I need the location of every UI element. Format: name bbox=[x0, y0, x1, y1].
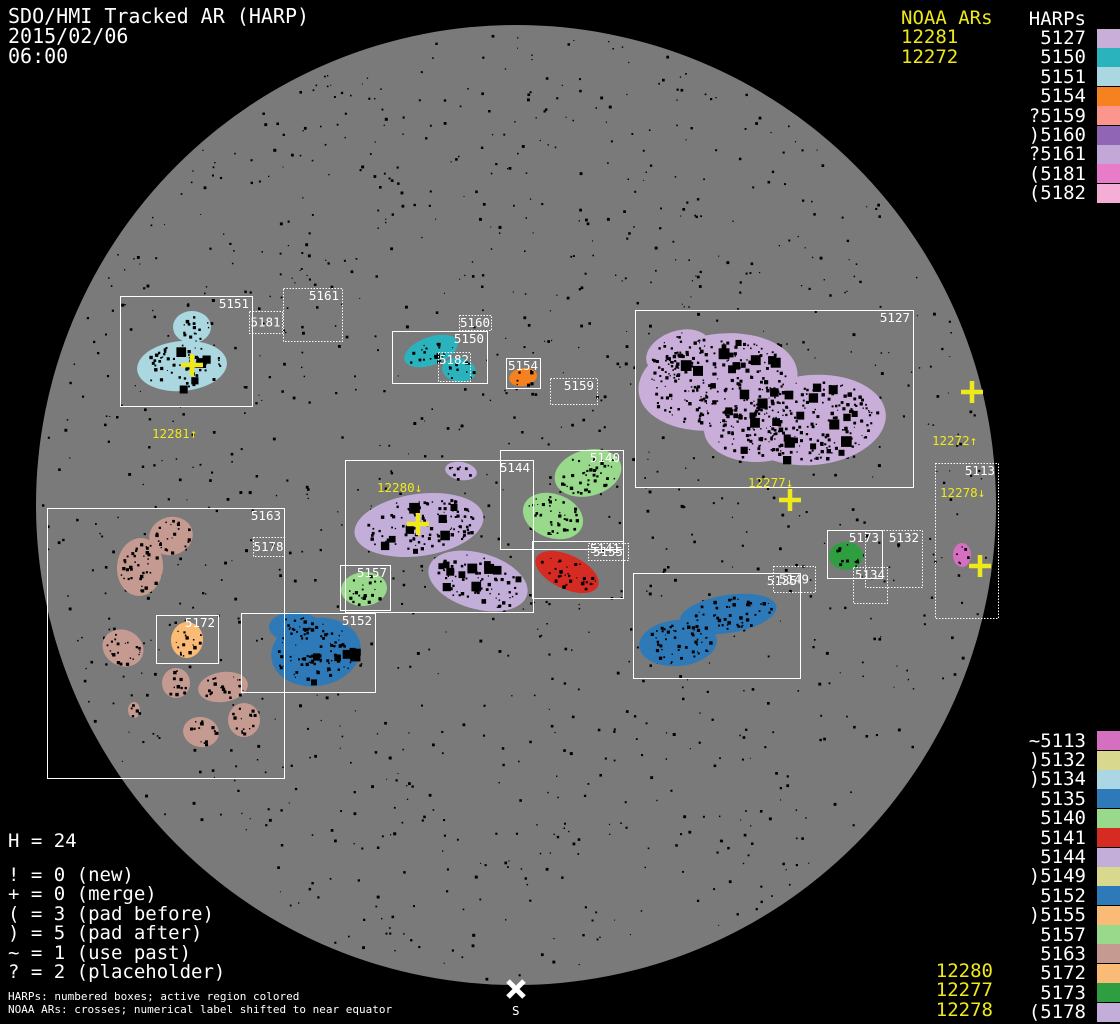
harp-color-swatch bbox=[1097, 983, 1120, 1002]
harp-region-5173 bbox=[829, 542, 863, 570]
harp-color-swatch bbox=[1097, 867, 1120, 886]
harp-list-item: 5173 bbox=[900, 983, 1120, 1002]
harp-box-label-5140: 5140 bbox=[590, 450, 620, 465]
harp-color-swatch bbox=[1097, 828, 1120, 847]
harp-box-label-5155: 5155 bbox=[593, 544, 623, 559]
harp-list-item: (5181 bbox=[900, 164, 1120, 183]
harp-list-bottom: ~5113)5132)51345135514051415144)51495152… bbox=[900, 731, 1120, 1022]
harp-list-item: 5141 bbox=[900, 828, 1120, 847]
harp-color-swatch bbox=[1097, 925, 1120, 944]
harp-box-label-5173: 5173 bbox=[849, 530, 879, 545]
harp-list-item: 5157 bbox=[900, 925, 1120, 944]
symbol-legend-line: ? = 2 (placeholder) bbox=[8, 963, 225, 982]
harp-color-swatch bbox=[1097, 29, 1120, 48]
harp-list-item: 5154 bbox=[900, 87, 1120, 106]
footer-line-noaa: NOAA ARs: crosses; numerical label shift… bbox=[8, 1003, 392, 1016]
harp-number: (5178 bbox=[900, 1001, 1086, 1023]
harp-color-swatch bbox=[1097, 67, 1120, 86]
harp-color-swatch bbox=[1097, 944, 1120, 963]
harp-box-label-5134: 5134 bbox=[855, 567, 885, 582]
title-block: SDO/HMI Tracked AR (HARP) 2015/02/06 06:… bbox=[8, 6, 309, 66]
harp-number: (5182 bbox=[900, 182, 1086, 204]
symbol-legend-line: ) = 5 (pad after) bbox=[8, 924, 225, 943]
harp-color-swatch bbox=[1097, 789, 1120, 808]
harp-color-swatch bbox=[1097, 145, 1120, 164]
harp-box-label-5144: 5144 bbox=[500, 460, 530, 475]
harp-list-item: 5172 bbox=[900, 964, 1120, 983]
harp-color-swatch bbox=[1097, 184, 1120, 203]
sun-disk bbox=[36, 25, 996, 985]
harp-region-5113 bbox=[953, 543, 971, 567]
noaa-ar-list-bottom: 122801227712278 bbox=[936, 962, 993, 1020]
harp-box-label-5181: 5181 bbox=[250, 315, 280, 330]
harp-box-label-5163: 5163 bbox=[251, 508, 281, 523]
south-pole-label: S bbox=[512, 1003, 520, 1018]
harp-box-label-5154: 5154 bbox=[508, 358, 538, 373]
harp-box-label-5150: 5150 bbox=[454, 331, 484, 346]
harp-list-item: 5152 bbox=[900, 886, 1120, 905]
harp-color-swatch bbox=[1097, 164, 1120, 183]
harp-color-swatch bbox=[1097, 731, 1120, 750]
harp-box-label-5161: 5161 bbox=[309, 288, 339, 303]
harp-box-label-5172: 5172 bbox=[185, 615, 215, 630]
harp-color-swatch bbox=[1097, 886, 1120, 905]
harp-box-label-5132: 5132 bbox=[889, 530, 919, 545]
noaa-cross-label-12278: 12278↓ bbox=[940, 485, 985, 500]
swatch-spacer bbox=[1097, 9, 1120, 28]
footer-notes: HARPs: numbered boxes; active region col… bbox=[8, 990, 392, 1016]
harp-list-item: 5140 bbox=[900, 809, 1120, 828]
harp-box-label-5159: 5159 bbox=[564, 378, 594, 393]
harp-list-item: ?5159 bbox=[900, 106, 1120, 125]
harp-color-swatch bbox=[1097, 87, 1120, 106]
harp-list-item: 5135 bbox=[900, 789, 1120, 808]
harp-box-label-5152: 5152 bbox=[342, 613, 372, 628]
harp-list-item: 5127 bbox=[900, 28, 1120, 47]
harp-box-label-5113: 5113 bbox=[965, 463, 995, 478]
harp-color-swatch bbox=[1097, 1003, 1120, 1022]
harp-list-item: 5150 bbox=[900, 48, 1120, 67]
harp-list-item: 5163 bbox=[900, 944, 1120, 963]
harp-count: H = 24 bbox=[8, 830, 77, 852]
harp-list-item: 5144 bbox=[900, 847, 1120, 866]
harp-box-label-5149: 5149 bbox=[779, 572, 809, 587]
harp-color-swatch bbox=[1097, 770, 1120, 789]
symbol-legend-line: + = 0 (merge) bbox=[8, 885, 225, 904]
noaa-cross-label-12272: 12272↑ bbox=[932, 433, 977, 448]
harp-list-item: )5155 bbox=[900, 906, 1120, 925]
harp-box-label-5127: 5127 bbox=[880, 310, 910, 325]
noaa-cross-label-12281: 12281↑ bbox=[152, 426, 197, 441]
harp-box-label-5178: 5178 bbox=[253, 539, 283, 554]
harp-color-swatch bbox=[1097, 48, 1120, 67]
harp-color-swatch bbox=[1097, 964, 1120, 983]
noaa-cross-label-12277: 12277↓ bbox=[748, 475, 793, 490]
harp-box-label-5160: 5160 bbox=[460, 315, 490, 330]
harp-box-label-5157: 5157 bbox=[357, 565, 387, 580]
footer-line-harps: HARPs: numbered boxes; active region col… bbox=[8, 990, 299, 1003]
harp-list-item: (5182 bbox=[900, 184, 1120, 203]
harp-list-top: HARPs5127515051515154?5159)5160?5161(518… bbox=[900, 9, 1120, 203]
noaa-ar-item: 12277 bbox=[936, 981, 993, 1000]
harp-box-label-5151: 5151 bbox=[219, 296, 249, 311]
harp-list-item: )5149 bbox=[900, 867, 1120, 886]
harp-list-item: )5134 bbox=[900, 770, 1120, 789]
harp-list-item: (5178 bbox=[900, 1002, 1120, 1021]
plot-time: 06:00 bbox=[8, 44, 68, 68]
harp-color-swatch bbox=[1097, 126, 1120, 145]
harp-list-header: HARPs bbox=[900, 9, 1120, 28]
harp-color-swatch bbox=[1097, 751, 1120, 770]
harp-list-item: )5160 bbox=[900, 125, 1120, 144]
harp-color-swatch bbox=[1097, 906, 1120, 925]
noaa-ar-item: 12278 bbox=[936, 1001, 993, 1020]
harp-tracker-plot: 5151518151615150516051825154515951275144… bbox=[0, 0, 1120, 1024]
harp-list-item: ?5161 bbox=[900, 145, 1120, 164]
harp-color-swatch bbox=[1097, 809, 1120, 828]
harp-list-item: 5151 bbox=[900, 67, 1120, 86]
harp-color-swatch bbox=[1097, 106, 1120, 125]
harp-color-swatch bbox=[1097, 848, 1120, 867]
symbol-legend: ! = 0 (new)+ = 0 (merge)( = 3 (pad befor… bbox=[8, 866, 225, 982]
harp-box-label-5182: 5182 bbox=[439, 352, 469, 367]
harp-list-item: )5132 bbox=[900, 750, 1120, 769]
harp-list-item: ~5113 bbox=[900, 731, 1120, 750]
noaa-cross-label-12280: 12280↓ bbox=[377, 480, 422, 495]
